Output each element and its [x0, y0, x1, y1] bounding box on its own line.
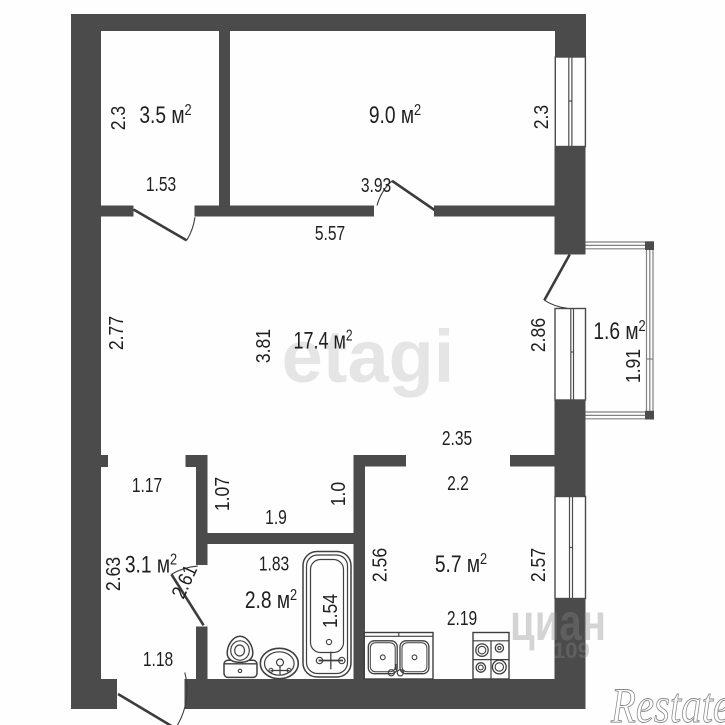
svg-text:1.91: 1.91 — [622, 349, 644, 383]
svg-text:1.07: 1.07 — [211, 477, 233, 511]
svg-text:1.53: 1.53 — [146, 173, 176, 195]
svg-text:2.63: 2.63 — [102, 557, 124, 591]
svg-text:2.57: 2.57 — [527, 548, 549, 582]
svg-text:2.77: 2.77 — [105, 316, 127, 350]
svg-text:2.19: 2.19 — [447, 607, 477, 629]
svg-text:3.5 м2: 3.5 м2 — [139, 101, 191, 129]
svg-text:1.54: 1.54 — [319, 594, 341, 628]
svg-text:2.86: 2.86 — [527, 318, 549, 352]
svg-text:1.9: 1.9 — [265, 506, 287, 528]
svg-text:3.81: 3.81 — [252, 329, 274, 363]
svg-text:109: 109 — [553, 638, 590, 663]
svg-text:5.7 м2: 5.7 м2 — [435, 550, 487, 578]
svg-text:1.18: 1.18 — [143, 648, 173, 670]
svg-text:2.35: 2.35 — [442, 427, 472, 449]
svg-text:9.0 м2: 9.0 м2 — [369, 101, 421, 129]
svg-text:2.3: 2.3 — [530, 105, 552, 129]
svg-text:2.56: 2.56 — [368, 548, 390, 582]
svg-text:3.93: 3.93 — [361, 174, 391, 196]
svg-text:Restate: Restate — [610, 677, 725, 725]
svg-text:2.3: 2.3 — [107, 106, 129, 130]
svg-text:5.57: 5.57 — [315, 222, 345, 244]
svg-text:1.17: 1.17 — [132, 474, 162, 496]
svg-text:3.1 м2: 3.1 м2 — [125, 550, 177, 578]
svg-text:2.8 м2: 2.8 м2 — [245, 586, 297, 614]
svg-text:1.0: 1.0 — [327, 482, 349, 506]
svg-text:2.2: 2.2 — [447, 472, 469, 494]
svg-text:1.6 м2: 1.6 м2 — [593, 317, 645, 345]
svg-text:17.4 м2: 17.4 м2 — [293, 326, 352, 354]
svg-text:1.83: 1.83 — [259, 553, 289, 575]
